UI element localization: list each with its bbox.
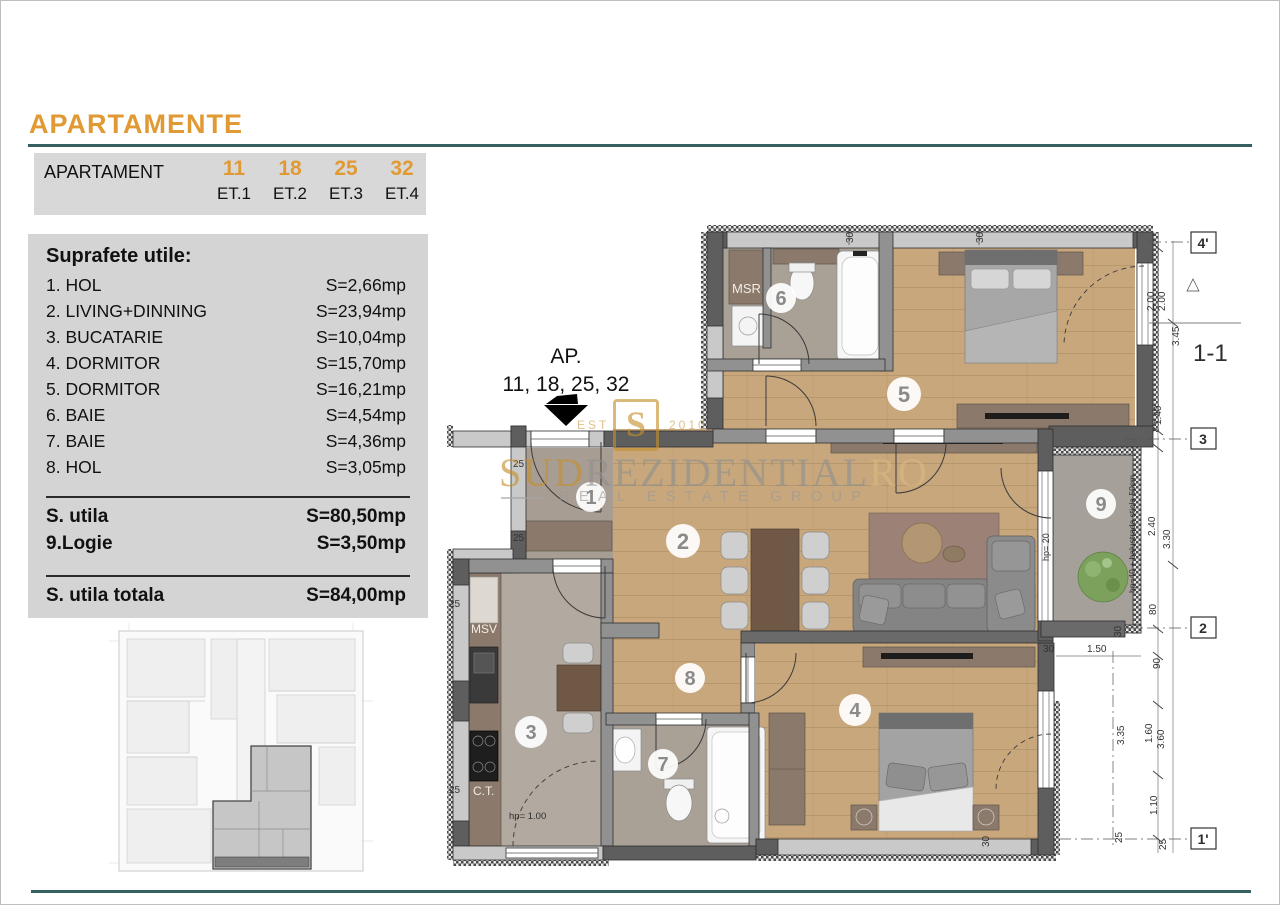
note-hp40: hp=40 + balustrada sticla 50cm (1127, 475, 1137, 593)
dim: 2.00 (1146, 291, 1157, 311)
room-number: 3 (525, 722, 536, 744)
room-number: 2 (677, 529, 689, 554)
dim: 25 (1158, 838, 1169, 850)
room-label-ct: C.T. (473, 784, 494, 798)
axis-label: 1' (1197, 831, 1208, 847)
note-hp20: hp= 20 (1041, 533, 1051, 561)
dim: 25 (449, 785, 461, 796)
bottom-rule (31, 890, 1251, 893)
dim: 30 (975, 231, 986, 243)
dim: 25 (513, 533, 525, 544)
room-number: 4 (849, 700, 861, 722)
room-label-msr: MSR (732, 281, 761, 296)
room-number: 6 (775, 288, 786, 310)
floor-plan: 1 2 3 4 5 6 7 8 9 MSR MSV C.T. hp= 20 hp… (1, 1, 1280, 905)
room-number: 1 (585, 487, 596, 509)
dim: 1.10 (1149, 795, 1160, 815)
room-label-msv: MSV (471, 622, 497, 636)
dim: 80 (1148, 603, 1159, 615)
ap-callout-title: AP. (491, 345, 641, 369)
dim: 30 (1043, 644, 1055, 655)
dim: 25 (1114, 831, 1125, 843)
room-number: 9 (1095, 494, 1106, 516)
dim: 2.00 (1157, 291, 1168, 311)
page: APARTAMENTE APARTAMENT 11 ET.1 18 ET.2 2… (0, 0, 1280, 905)
dim: 90 (1152, 657, 1163, 669)
axis-label: 3 (1199, 431, 1207, 447)
dim: 25 (449, 599, 461, 610)
dim: 30 (1113, 625, 1124, 637)
dim: 3.45 (1171, 326, 1182, 346)
dim: 1.60 (1144, 723, 1155, 743)
dim: 1.50 (1087, 644, 1107, 655)
note-hp100: hp= 1.00 (509, 811, 546, 822)
room-number: 7 (657, 754, 668, 776)
dim: 25 (513, 459, 525, 470)
dim: 2.40 (1147, 516, 1158, 536)
ap-arrow (544, 394, 588, 426)
dim: 3.35 (1116, 725, 1127, 745)
section-label: 1-1 (1193, 340, 1228, 367)
axis-label: 4' (1197, 235, 1208, 251)
dim: 30 (981, 835, 992, 847)
dim: 30 (845, 231, 856, 243)
dim: 3.60 (1156, 729, 1167, 749)
site-key-plan (109, 623, 373, 871)
axis-label: 2 (1199, 620, 1207, 636)
ap-callout-units: 11, 18, 25, 32 (471, 373, 661, 397)
room-number: 5 (898, 382, 910, 407)
room-number: 8 (684, 668, 695, 690)
dim: 1.40 (1153, 405, 1164, 425)
dim: 3.30 (1162, 529, 1173, 549)
